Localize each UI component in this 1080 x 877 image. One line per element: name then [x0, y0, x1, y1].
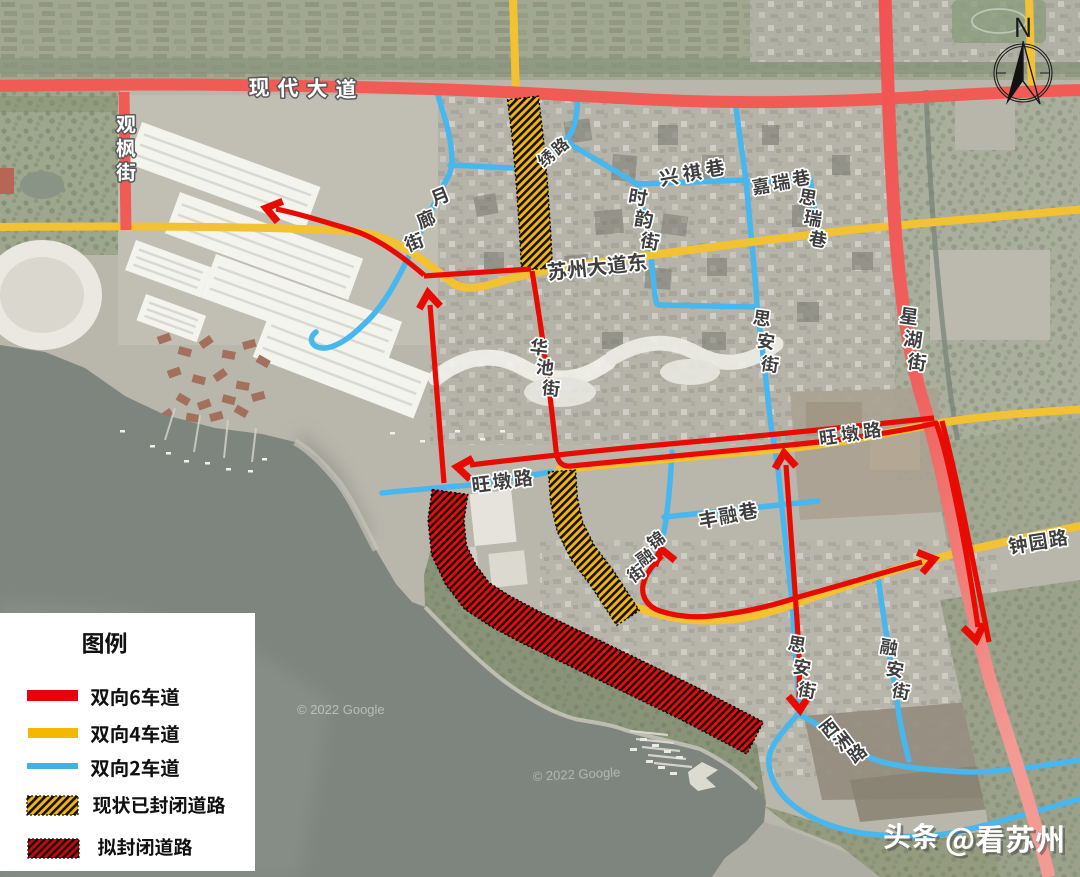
- svg-text:© 2022 Google: © 2022 Google: [297, 702, 385, 717]
